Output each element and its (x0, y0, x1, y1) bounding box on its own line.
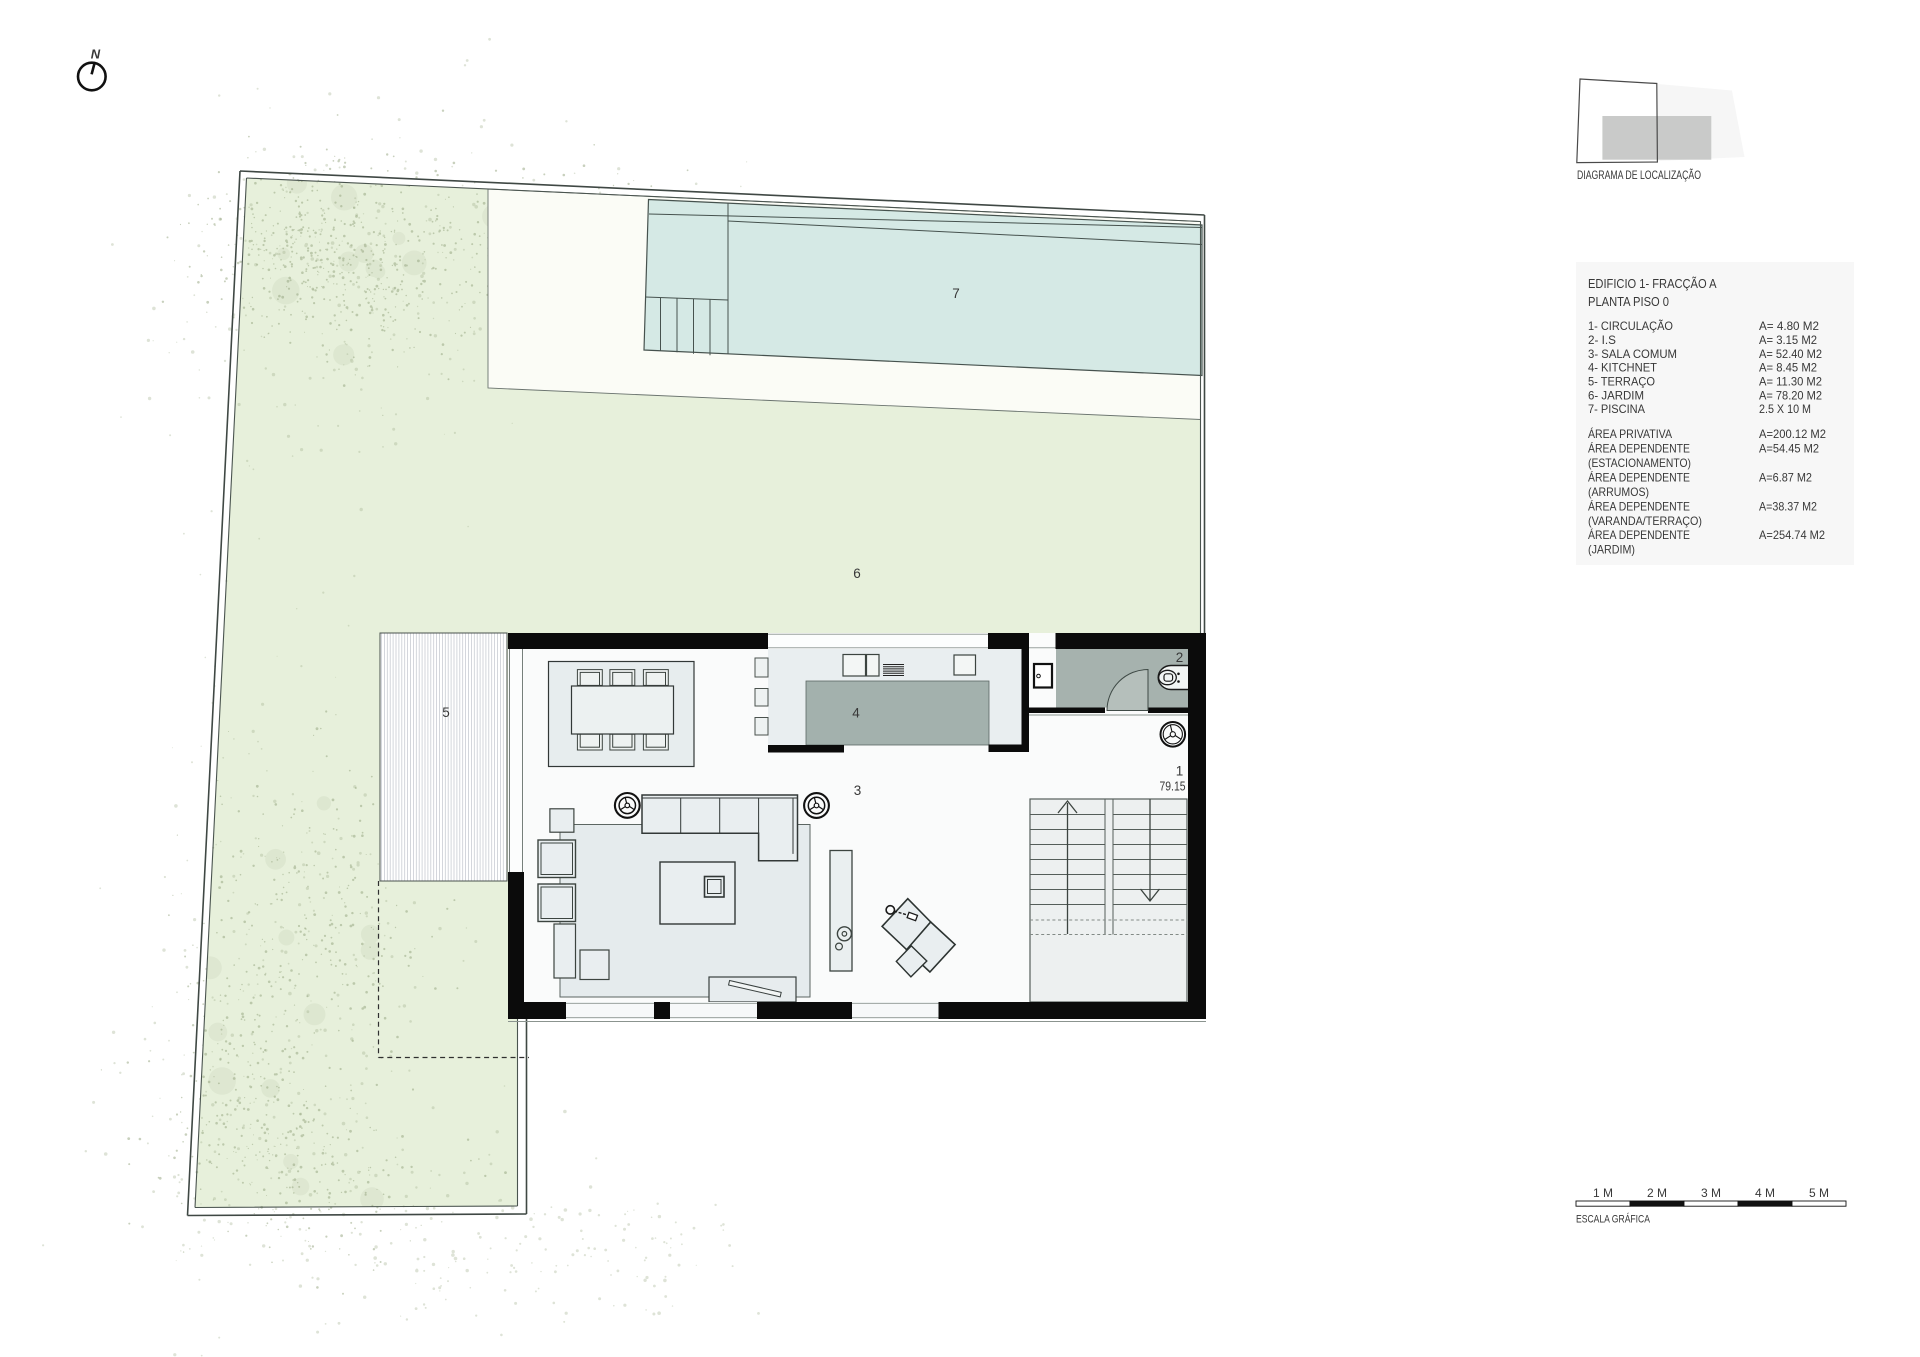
svg-text:A= 3.15 M2: A= 3.15 M2 (1759, 333, 1817, 347)
svg-text:6- JARDIM: 6- JARDIM (1588, 389, 1644, 403)
svg-text:DIAGRAMA DE LOCALIZAÇÃO: DIAGRAMA DE LOCALIZAÇÃO (1577, 168, 1701, 182)
svg-text:7: 7 (952, 286, 960, 301)
svg-text:6: 6 (853, 566, 861, 581)
svg-text:5 M: 5 M (1809, 1186, 1829, 1200)
svg-text:(ARRUMOS): (ARRUMOS) (1588, 485, 1649, 499)
svg-text:ÁREA DEPENDENTE: ÁREA DEPENDENTE (1588, 527, 1690, 542)
svg-text:5- TERRAÇO: 5- TERRAÇO (1588, 375, 1655, 389)
svg-text:7- PISCINA: 7- PISCINA (1588, 402, 1645, 416)
svg-text:A=254.74 M2: A=254.74 M2 (1759, 528, 1825, 542)
svg-text:4 M: 4 M (1755, 1186, 1775, 1200)
svg-text:4: 4 (852, 706, 860, 721)
svg-text:A=54.45 M2: A=54.45 M2 (1759, 442, 1819, 456)
svg-text:2- I.S: 2- I.S (1588, 333, 1616, 347)
svg-text:A=6.87 M2: A=6.87 M2 (1759, 471, 1812, 485)
svg-text:3: 3 (854, 783, 862, 798)
svg-text:EDIFICIO 1- FRACÇÃO A: EDIFICIO 1- FRACÇÃO A (1588, 277, 1717, 291)
svg-text:1 M: 1 M (1593, 1186, 1613, 1200)
svg-text:(ESTACIONAMENTO): (ESTACIONAMENTO) (1588, 456, 1691, 470)
svg-text:A= 52.40 M2: A= 52.40 M2 (1759, 347, 1822, 361)
svg-text:PLANTA PISO 0: PLANTA PISO 0 (1588, 295, 1669, 309)
svg-text:A= 78.20 M2: A= 78.20 M2 (1759, 389, 1822, 403)
svg-text:79.15: 79.15 (1160, 780, 1186, 794)
svg-text:4- KITCHNET: 4- KITCHNET (1588, 361, 1658, 375)
svg-text:(VARANDA/TERRAÇO): (VARANDA/TERRAÇO) (1588, 514, 1702, 528)
svg-text:3 M: 3 M (1701, 1186, 1721, 1200)
svg-text:5: 5 (442, 705, 450, 720)
svg-text:3- SALA COMUM: 3- SALA COMUM (1588, 347, 1677, 361)
svg-text:ÁREA DEPENDENTE: ÁREA DEPENDENTE (1588, 499, 1690, 514)
svg-text:A=200.12 M2: A=200.12 M2 (1759, 427, 1826, 441)
svg-text:2.5 X 10 M: 2.5 X 10 M (1759, 402, 1811, 416)
svg-text:(JARDIM): (JARDIM) (1588, 543, 1635, 557)
svg-text:2: 2 (1176, 650, 1184, 665)
svg-text:1: 1 (1176, 764, 1184, 779)
svg-text:ESCALA GRÁFICA: ESCALA GRÁFICA (1576, 1213, 1651, 1226)
svg-text:1- CIRCULAÇÃO: 1- CIRCULAÇÃO (1588, 319, 1673, 333)
svg-text:N: N (91, 47, 101, 62)
svg-text:ÁREA PRIVATIVA: ÁREA PRIVATIVA (1588, 426, 1672, 441)
svg-text:ÁREA DEPENDENTE: ÁREA DEPENDENTE (1588, 441, 1690, 456)
svg-text:A= 8.45 M2: A= 8.45 M2 (1759, 361, 1817, 375)
svg-text:A=38.37 M2: A=38.37 M2 (1759, 500, 1817, 514)
svg-text:2 M: 2 M (1647, 1186, 1667, 1200)
svg-text:ÁREA DEPENDENTE: ÁREA DEPENDENTE (1588, 470, 1690, 485)
svg-text:A= 4.80 M2: A= 4.80 M2 (1759, 319, 1819, 333)
svg-text:A= 11.30 M2: A= 11.30 M2 (1759, 375, 1822, 389)
